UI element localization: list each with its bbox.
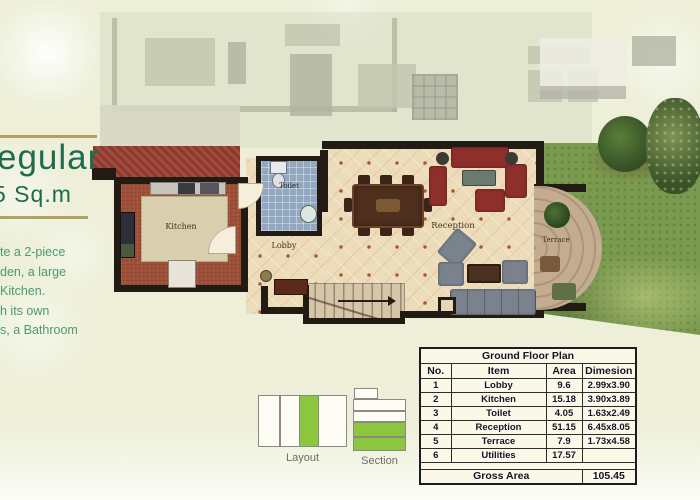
section-bar-green xyxy=(353,422,406,437)
kitchen-label: Kitchen xyxy=(150,222,212,231)
col-header-item: Item xyxy=(451,363,546,378)
gray-armchair xyxy=(502,260,528,284)
gross-area-label: Gross Area xyxy=(420,469,582,484)
dining-chair xyxy=(344,198,352,212)
gross-area-value: 105.45 xyxy=(582,469,636,484)
faded-dresser xyxy=(228,42,246,84)
layout-diagram xyxy=(258,395,347,447)
table-cell: 2 xyxy=(420,392,451,406)
faded-patio-strip xyxy=(100,105,240,148)
table-cell: 2.99x3.90 xyxy=(582,378,636,392)
page-title: egular xyxy=(0,138,100,178)
side-table-round xyxy=(505,152,518,165)
red-sofa xyxy=(451,147,509,168)
table-cell: Terrace xyxy=(451,434,546,448)
faded-roof-block xyxy=(540,38,626,90)
stove-icon xyxy=(178,183,195,194)
table-centerpiece xyxy=(376,199,400,212)
table-cell: 7.9 xyxy=(546,434,582,448)
table-cell: 15.18 xyxy=(546,392,582,406)
faded-tv-cabinet xyxy=(632,36,676,66)
table-cell: 5 xyxy=(420,434,451,448)
lobby-reception-wall xyxy=(320,150,328,212)
background-bubble xyxy=(0,0,105,110)
table-cell: Lobby xyxy=(451,378,546,392)
area-subtitle: 5 Sq.m xyxy=(0,181,72,208)
section-diagram-label: Section xyxy=(353,455,406,467)
stairs-arrow-head xyxy=(388,296,396,306)
section-bar-top xyxy=(354,388,378,399)
red-armchair xyxy=(505,164,527,198)
gold-divider xyxy=(0,216,88,219)
faded-upper-unit-plan xyxy=(100,12,592,148)
table-cell: Utilities xyxy=(451,448,546,462)
section-bar xyxy=(353,399,406,411)
table-row: 3 Toilet 4.05 1.63x2.49 xyxy=(420,406,636,420)
faded-cabinet xyxy=(290,54,332,116)
gray-armchair xyxy=(438,262,464,286)
col-header-no: No. xyxy=(420,363,451,378)
faded-wardrobe xyxy=(285,24,340,46)
dark-coffee-table xyxy=(467,264,501,283)
table-spacer xyxy=(420,462,636,469)
faded-dining-table xyxy=(358,64,416,108)
red-chair xyxy=(475,189,505,212)
gray-sofa xyxy=(450,289,536,315)
table-cell: 6.45x8.05 xyxy=(582,420,636,434)
faded-wall xyxy=(112,18,117,110)
table-cell xyxy=(582,448,636,462)
toilet-room xyxy=(256,156,322,236)
lobby-label: Lobby xyxy=(254,241,314,250)
reception-top-wall xyxy=(322,141,544,149)
brochure-page: Kitchen Toilet Lobby Reception Terrace e… xyxy=(0,0,700,500)
layout-highlight-column xyxy=(299,396,319,446)
floor-pot-icon xyxy=(260,270,272,282)
table-gross-row: Gross Area 105.45 xyxy=(420,469,636,484)
col-header-area: Area xyxy=(546,363,582,378)
section-bar-green xyxy=(353,437,406,451)
table-cell: 17.57 xyxy=(546,448,582,462)
table-row: 6 Utilities 17.57 xyxy=(420,448,636,462)
table-cell: 3 xyxy=(420,406,451,420)
layout-diagram-label: Layout xyxy=(258,452,347,464)
table-row: 4 Reception 51.15 6.45x8.05 xyxy=(420,420,636,434)
description-line: Kitchen. xyxy=(0,282,100,302)
description-line: den, a large xyxy=(0,263,100,283)
table-cell: 1 xyxy=(420,378,451,392)
table-title: Ground Floor Plan xyxy=(420,348,636,363)
faded-roof-edge xyxy=(540,86,626,99)
table-cell: 1.73x4.58 xyxy=(582,434,636,448)
lobby-step-wall-h xyxy=(261,307,309,314)
faded-bed xyxy=(145,38,215,86)
ground-floor-plan-table: Ground Floor Plan No. Item Area Dimesion… xyxy=(419,347,637,485)
terrace-label: Terrace xyxy=(530,236,582,244)
entrance-pillar xyxy=(438,297,456,314)
console-cabinet xyxy=(274,279,308,295)
description-text: te a 2-piece den, a large Kitchen. h its… xyxy=(0,243,100,341)
bush-icon xyxy=(598,116,652,172)
table-cell: 51.15 xyxy=(546,420,582,434)
table-cell: 6 xyxy=(420,448,451,462)
terrace-chair xyxy=(552,283,576,300)
table-title-row: Ground Floor Plan xyxy=(420,348,636,363)
table-spacer-row xyxy=(420,462,636,469)
reception-label: Reception xyxy=(418,221,488,231)
toilet-label: Toilet xyxy=(259,182,319,190)
stairs-direction-arrow xyxy=(338,300,390,302)
section-bar xyxy=(353,411,406,422)
table-header-row: No. Item Area Dimesion xyxy=(420,363,636,378)
description-line: te a 2-piece xyxy=(0,243,100,263)
plant-icon xyxy=(544,202,570,228)
table-cell: 1.63x2.49 xyxy=(582,406,636,420)
table-row: 2 Kitchen 15.18 3.90x3.89 xyxy=(420,392,636,406)
table-cell: 4.05 xyxy=(546,406,582,420)
table-row: 1 Lobby 9.6 2.99x3.90 xyxy=(420,378,636,392)
table-cell: Kitchen xyxy=(451,392,546,406)
table-cell: Toilet xyxy=(451,406,546,420)
terrace-chair xyxy=(540,256,560,272)
kitchen-table xyxy=(168,260,196,288)
fridge-icon xyxy=(120,212,135,258)
stairs-bottom-wall xyxy=(303,318,405,324)
layout-divider xyxy=(279,396,281,446)
red-armchair xyxy=(429,166,447,206)
table-cell: 9.6 xyxy=(546,378,582,392)
description-line: h its own xyxy=(0,302,100,322)
faded-grid-table xyxy=(412,74,458,120)
washbasin-icon xyxy=(300,205,317,223)
table-row: 5 Terrace 7.9 1.73x4.58 xyxy=(420,434,636,448)
tree-icon xyxy=(646,98,700,194)
sink-icon xyxy=(200,183,219,194)
col-header-dimension: Dimesion xyxy=(582,363,636,378)
side-table-round xyxy=(436,152,449,165)
coffee-table xyxy=(462,170,496,186)
table-cell: 4 xyxy=(420,420,451,434)
description-line: s, a Bathroom xyxy=(0,321,100,341)
table-cell: 3.90x3.89 xyxy=(582,392,636,406)
table-cell: Reception xyxy=(451,420,546,434)
